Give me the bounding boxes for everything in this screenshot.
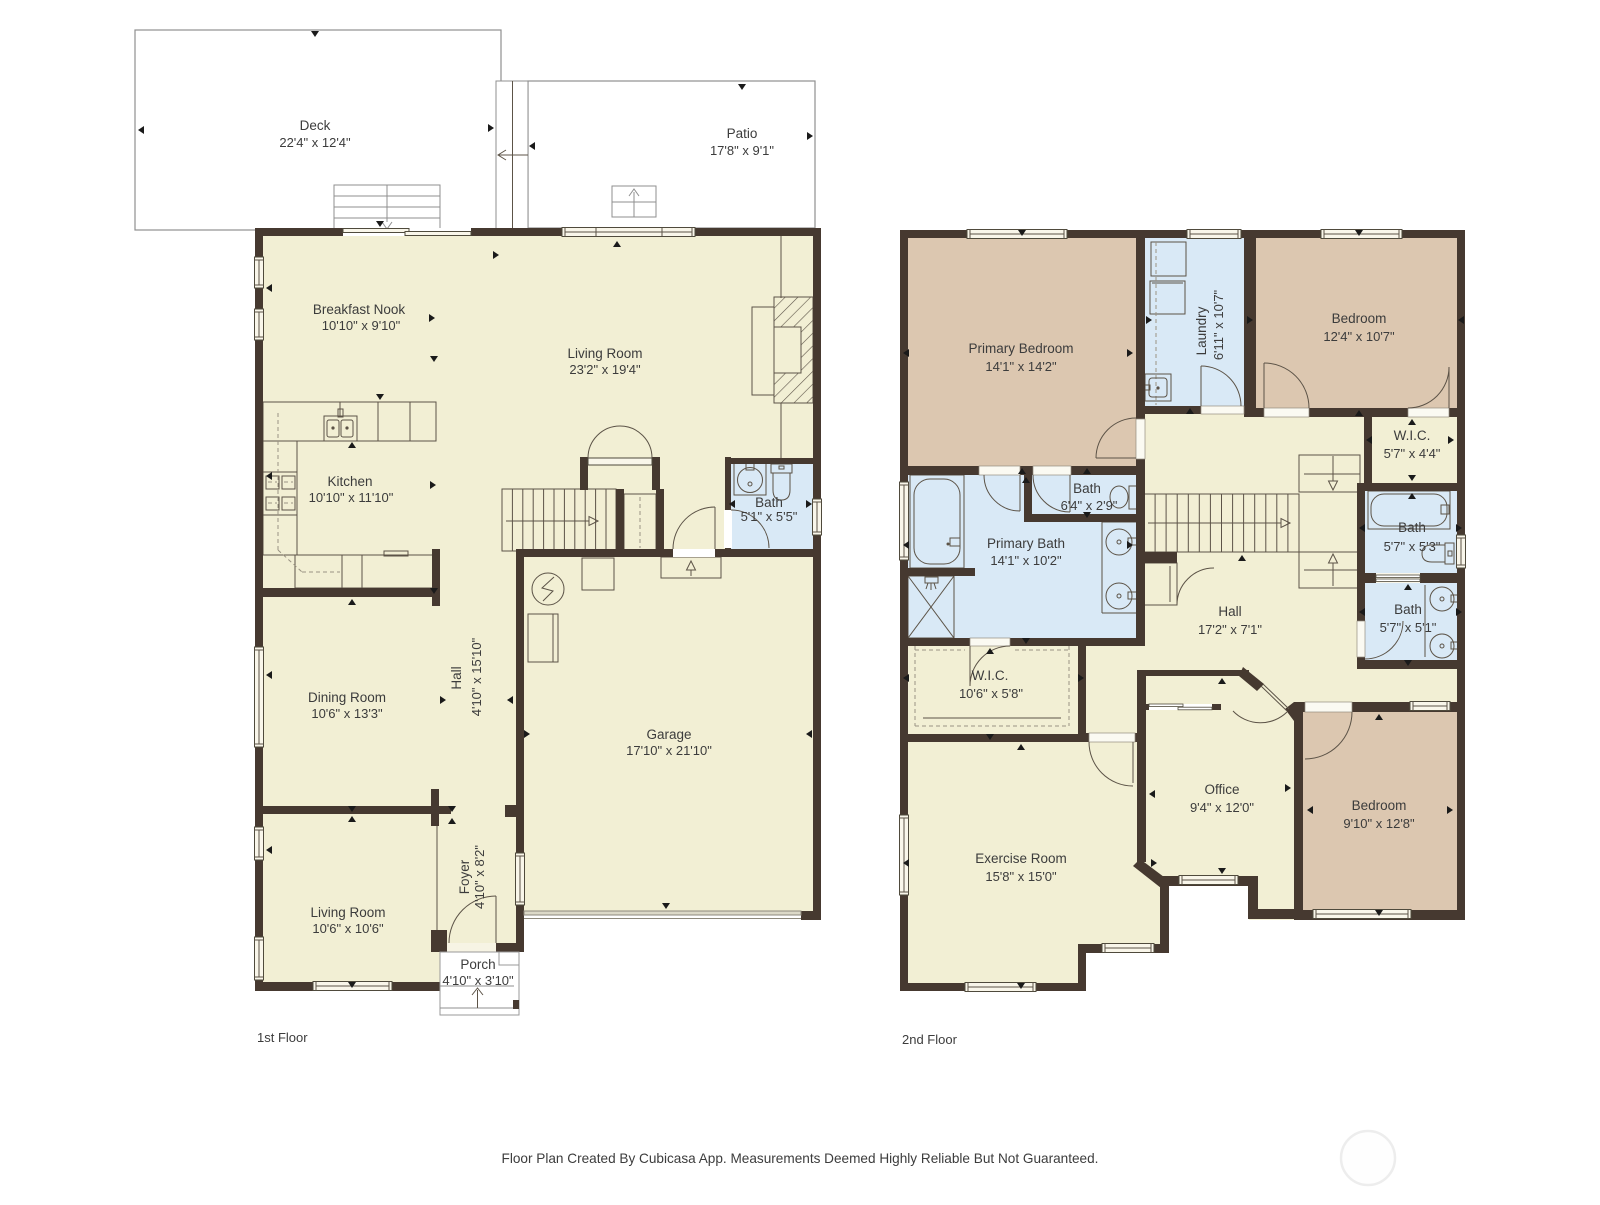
svg-text:Primary Bath: Primary Bath [987, 536, 1065, 551]
svg-text:5'7" x 5'3": 5'7" x 5'3" [1384, 539, 1441, 554]
svg-text:2nd Floor: 2nd Floor [902, 1032, 958, 1047]
svg-text:17'2" x 7'1": 17'2" x 7'1" [1198, 622, 1262, 637]
svg-text:Breakfast Nook: Breakfast Nook [313, 302, 406, 317]
svg-text:6'11" x 10'7": 6'11" x 10'7" [1211, 289, 1226, 360]
svg-text:Primary Bedroom: Primary Bedroom [968, 341, 1073, 356]
svg-text:23'2" x 19'4": 23'2" x 19'4" [569, 362, 641, 377]
svg-text:9'10" x 12'8": 9'10" x 12'8" [1343, 816, 1415, 831]
svg-text:10'6" x 10'6": 10'6" x 10'6" [312, 921, 384, 936]
svg-text:Kitchen: Kitchen [327, 474, 372, 489]
svg-text:Exercise Room: Exercise Room [975, 851, 1067, 866]
svg-text:1st Floor: 1st Floor [257, 1030, 308, 1045]
svg-text:6'4" x 2'9": 6'4" x 2'9" [1061, 498, 1118, 513]
svg-text:Hall: Hall [449, 666, 464, 689]
svg-text:4'10" x 3'10": 4'10" x 3'10" [442, 973, 514, 988]
svg-text:22'4" x 12'4": 22'4" x 12'4" [279, 135, 351, 150]
svg-text:Hall: Hall [1218, 604, 1241, 619]
svg-text:W.I.C.: W.I.C. [972, 668, 1009, 683]
svg-text:Dining Room: Dining Room [308, 690, 386, 705]
svg-text:Bedroom: Bedroom [1332, 311, 1387, 326]
svg-text:Bath: Bath [1394, 602, 1422, 617]
svg-text:4'10" x 8'2": 4'10" x 8'2" [472, 845, 487, 909]
svg-text:Garage: Garage [646, 727, 691, 742]
svg-text:Floor Plan Created By Cubicasa: Floor Plan Created By Cubicasa App. Meas… [502, 1151, 1099, 1166]
svg-text:W.I.C.: W.I.C. [1394, 428, 1431, 443]
svg-text:5'1" x 5'5": 5'1" x 5'5" [741, 509, 798, 524]
svg-text:10'6" x 13'3": 10'6" x 13'3" [311, 706, 383, 721]
svg-text:17'10" x 21'10": 17'10" x 21'10" [626, 743, 712, 758]
svg-text:Porch: Porch [460, 957, 495, 972]
svg-text:10'10" x 9'10": 10'10" x 9'10" [322, 318, 401, 333]
svg-text:Bath: Bath [1398, 520, 1426, 535]
svg-text:17'8" x 9'1": 17'8" x 9'1" [710, 143, 774, 158]
svg-text:5'7" x 5'1": 5'7" x 5'1" [1380, 620, 1437, 635]
svg-text:12'4" x 10'7": 12'4" x 10'7" [1323, 329, 1395, 344]
svg-text:Living Room: Living Room [310, 905, 385, 920]
svg-text:Patio: Patio [727, 126, 758, 141]
svg-text:Bedroom: Bedroom [1352, 798, 1407, 813]
svg-text:5'7" x 4'4": 5'7" x 4'4" [1384, 446, 1441, 461]
svg-text:Laundry: Laundry [1194, 306, 1209, 355]
svg-text:Bath: Bath [1073, 481, 1101, 496]
svg-text:9'4" x 12'0": 9'4" x 12'0" [1190, 800, 1254, 815]
svg-text:Deck: Deck [300, 118, 331, 133]
svg-text:Bath: Bath [755, 495, 783, 510]
svg-text:Office: Office [1204, 782, 1239, 797]
svg-text:14'1" x 14'2": 14'1" x 14'2" [985, 359, 1057, 374]
svg-text:Foyer: Foyer [457, 859, 472, 894]
svg-text:Living Room: Living Room [567, 346, 642, 361]
svg-text:10'10" x 11'10": 10'10" x 11'10" [309, 490, 394, 505]
svg-text:15'8" x 15'0": 15'8" x 15'0" [985, 869, 1057, 884]
svg-text:10'6" x 5'8": 10'6" x 5'8" [959, 686, 1023, 701]
svg-text:4'10" x 15'10": 4'10" x 15'10" [469, 637, 484, 716]
svg-text:14'1" x 10'2": 14'1" x 10'2" [990, 553, 1062, 568]
